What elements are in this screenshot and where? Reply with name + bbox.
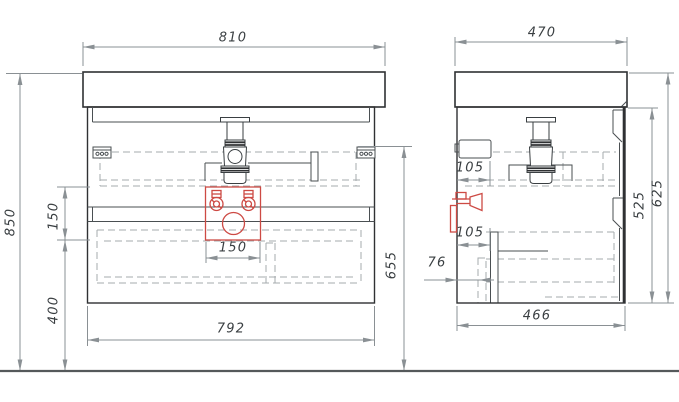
side-view xyxy=(424,37,674,331)
dim-upper-offset-105 xyxy=(457,161,490,186)
dim-cabinet-depth-466 xyxy=(457,306,625,331)
drawing-linework xyxy=(0,0,679,402)
dim-zone-width-150 xyxy=(206,242,260,263)
dim-total-height-850 xyxy=(6,74,82,372)
dim-lower-offset-105 xyxy=(457,228,490,251)
dim-top-depth-470 xyxy=(455,37,627,66)
wall-bracket-upper xyxy=(613,110,623,142)
washbasin-top-side xyxy=(455,72,627,107)
mounting-bracket-right xyxy=(357,147,375,158)
hidden-lines-front-bottom-drawer xyxy=(97,230,361,283)
technical-drawing-canvas: 810 850 150 400 150 792 655 470 105 105 … xyxy=(0,0,679,402)
dim-top-width-810 xyxy=(83,42,385,66)
drain-outlet-circle xyxy=(223,213,245,235)
connection-zone-red-box xyxy=(206,187,261,240)
front-view xyxy=(6,42,412,371)
wall-bracket-lower xyxy=(613,198,623,229)
dim-cabinet-width-792 xyxy=(88,306,375,346)
washbasin-top-front xyxy=(83,72,385,107)
junction-box xyxy=(455,140,491,158)
mounting-bracket-left xyxy=(93,147,111,158)
drain-trap-side xyxy=(527,118,556,184)
drain-trap-front xyxy=(221,118,250,184)
dim-zone-height-150 xyxy=(57,187,90,240)
dim-bracket-height-655 xyxy=(358,147,412,372)
dim-body-height-525 xyxy=(628,108,658,303)
water-supply-valve-red-icon xyxy=(451,193,483,233)
